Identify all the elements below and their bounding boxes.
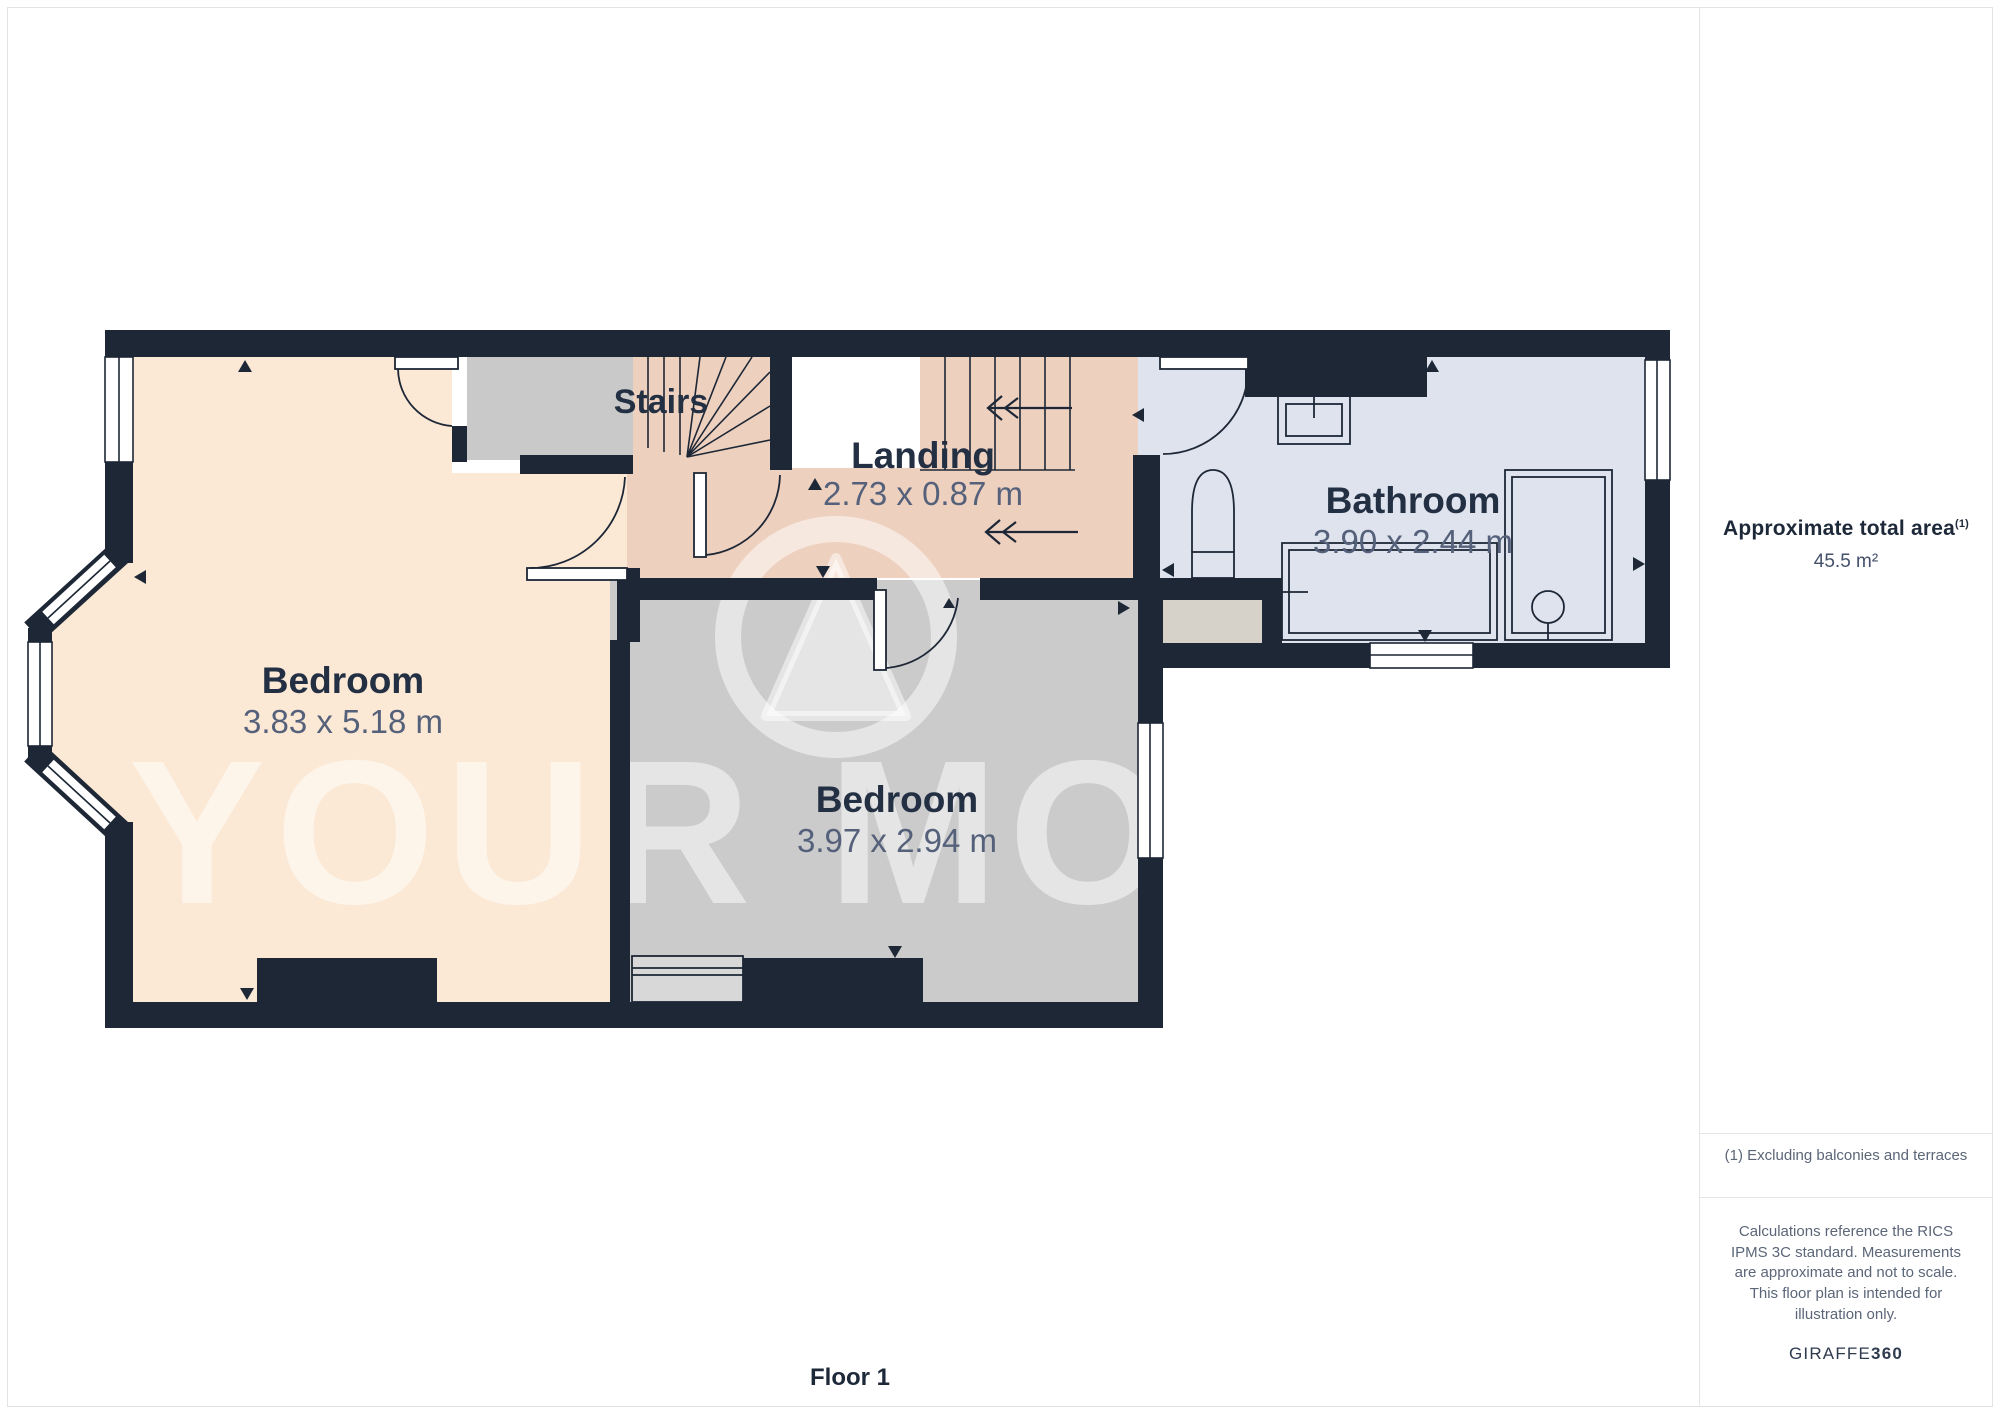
giraffe360-logo-name: GIRAFFE <box>1789 1344 1871 1363</box>
total-area-title-text: Approximate total area <box>1723 517 1955 540</box>
bedroom1-dims: 3.83 x 5.18 m <box>243 703 443 740</box>
floor-title: Floor 1 <box>750 1364 950 1392</box>
total-area-value: 45.5 m² <box>1700 551 1992 573</box>
total-area-block: Approximate total area(1) 45.5 m² <box>1700 517 1992 573</box>
floorplan-page: YOUR MOVE <box>0 0 2000 1414</box>
bathroom-label: Bathroom <box>1326 480 1501 521</box>
window-bedroom2-right <box>1138 723 1163 858</box>
giraffe360-logo-suffix: 360 <box>1871 1344 1903 1363</box>
bathroom-dims: 3.90 x 2.44 m <box>1313 523 1513 560</box>
bedroom2-label: Bedroom <box>816 779 978 820</box>
bedroom1-label: Bedroom <box>262 660 424 701</box>
landing-dims: 2.73 x 0.87 m <box>823 475 1023 512</box>
wardrobe-fixture <box>632 956 743 1002</box>
sidebar-divider <box>1700 1197 1992 1198</box>
window-bathroom-right <box>1645 360 1670 480</box>
window-bay-centre <box>28 642 52 746</box>
total-area-footnote-ref: (1) <box>1955 518 1969 530</box>
floorplan-canvas: YOUR MOVE <box>0 0 2000 1414</box>
stairs-label: Stairs <box>614 383 709 421</box>
sidebar-divider <box>1700 1133 1992 1134</box>
disclaimer-text: Calculations reference the RICS IPMS 3C … <box>1722 1222 1970 1325</box>
footnote-text: (1) Excluding balconies and terraces <box>1706 1147 1986 1164</box>
airing-cupboard-floor <box>1158 597 1262 645</box>
window-bathroom-bottom <box>1370 643 1473 668</box>
total-area-title: Approximate total area(1) <box>1700 517 1992 541</box>
landing-label: Landing <box>851 435 995 476</box>
window-bedroom1-left <box>105 357 133 462</box>
giraffe360-logo: GIRAFFE360 <box>1700 1344 1992 1364</box>
bedroom2-dims: 3.97 x 2.94 m <box>797 822 997 859</box>
